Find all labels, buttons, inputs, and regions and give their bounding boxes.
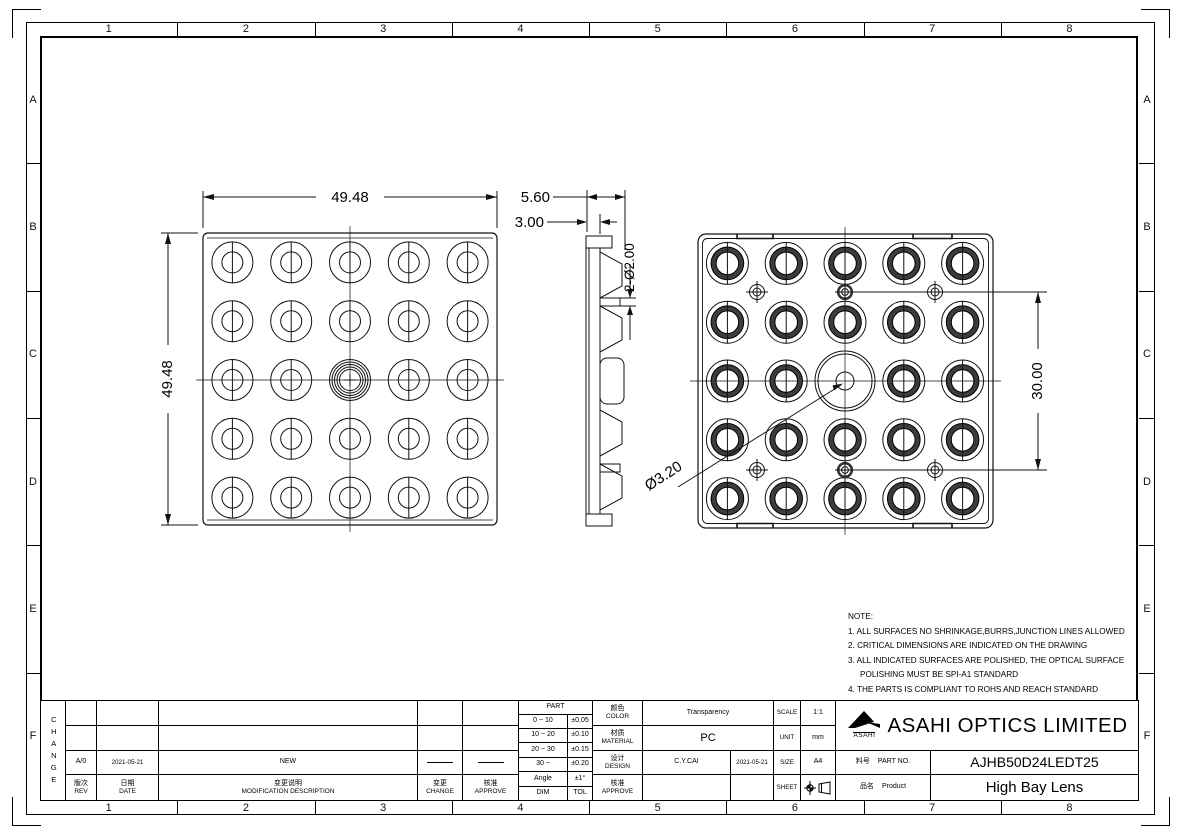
zone-col-divider — [726, 22, 727, 36]
approve-header: 核准 APPROVE — [462, 774, 519, 801]
design-label-en: DESIGN — [605, 763, 630, 770]
zone-row-label-left: B — [26, 163, 40, 290]
approve-header-en: APPROVE — [475, 788, 506, 795]
tolerance-footer-tol: TOL — [567, 786, 593, 801]
zone-col-divider — [452, 22, 453, 36]
product-value: High Bay Lens — [930, 774, 1139, 801]
zone-col-divider — [452, 800, 453, 815]
approve-label: 核准 APPROVE — [592, 774, 643, 801]
zone-col-label-top: 5 — [589, 22, 726, 36]
change-column-label: CHANGE — [49, 715, 58, 787]
design-by: C.Y.CAI — [642, 750, 731, 775]
zone-row-divider — [1139, 673, 1155, 674]
zone-row-divider — [1139, 545, 1155, 546]
projection-symbol-icon — [804, 781, 832, 795]
rev-empty-cell — [417, 725, 463, 751]
part-no-label-en: PART NO. — [878, 758, 910, 766]
zone-col-divider — [864, 800, 865, 815]
zone-col-divider — [1001, 800, 1002, 815]
approve-label-zh: 核准 — [611, 780, 625, 788]
zone-col-divider — [177, 800, 178, 815]
note-line: 1. ALL SURFACES NO SHRINKAGE,BURRS,JUNCT… — [848, 625, 1140, 640]
tolerance-tol: ±0.20 — [567, 757, 593, 772]
zone-col-divider — [589, 22, 590, 36]
tolerance-dim: Angle — [518, 771, 568, 787]
material-label-zh: 材质 — [611, 730, 625, 738]
product-label-en: Product — [882, 783, 906, 791]
change-header-zh: 变更 — [433, 780, 447, 788]
zone-col-label-bottom: 7 — [864, 800, 1001, 815]
tolerance-tol: ±1° — [567, 771, 593, 787]
zone-row-label-right: F — [1139, 673, 1155, 800]
desc-header-en: MODIFICATION DESCRIPTION — [241, 788, 334, 795]
scale-label: SCALE — [773, 700, 801, 726]
zone-col-divider — [177, 22, 178, 36]
part-no-value: AJHB50D24LEDT25 — [930, 750, 1139, 775]
zone-row-label-right: E — [1139, 545, 1155, 672]
zone-row-divider — [1139, 291, 1155, 292]
zone-row-label-left: D — [26, 418, 40, 545]
zone-col-label-bottom: 1 — [40, 800, 177, 815]
zone-col-divider — [315, 800, 316, 815]
zone-col-label-top: 7 — [864, 22, 1001, 36]
notes-title: NOTE: — [848, 610, 1140, 625]
color-label-zh: 颜色 — [611, 705, 625, 713]
color-label-en: COLOR — [606, 713, 629, 720]
zone-col-label-bottom: 8 — [1001, 800, 1138, 815]
tolerance-header: PART — [518, 700, 593, 715]
brand-cell: ASAHI ASAHI OPTICS LIMITED — [835, 700, 1139, 751]
company-name: ASAHI OPTICS LIMITED — [887, 714, 1127, 738]
desc-header-zh: 变更说明 — [274, 780, 302, 788]
color-label: 颜色 COLOR — [592, 700, 643, 726]
zone-col-label-top: 6 — [726, 22, 863, 36]
zone-col-divider — [1001, 22, 1002, 36]
tolerance-tol: ±0.15 — [567, 742, 593, 758]
zone-col-divider — [589, 800, 590, 815]
zone-col-label-top: 2 — [177, 22, 314, 36]
zone-col-label-bottom: 5 — [589, 800, 726, 815]
asahi-logo: ASAHI — [846, 711, 882, 740]
zone-row-label-left: A — [26, 36, 40, 163]
note-line: POLISHING MUST BE SPI-A1 STANDARD — [848, 668, 1140, 683]
approve-header-zh: 核准 — [484, 780, 498, 788]
zone-col-label-top: 3 — [315, 22, 452, 36]
notes-block: NOTE: 1. ALL SURFACES NO SHRINKAGE,BURRS… — [848, 610, 1140, 697]
drawing-sheet: 49.48 49.48 — [0, 0, 1181, 835]
zone-row-label-right: C — [1139, 291, 1155, 418]
size-value: A4 — [800, 750, 836, 775]
date-header-zh: 日期 — [121, 780, 135, 788]
zone-row-divider — [26, 291, 40, 292]
note-line: 3. ALL INDICATED SURFACES ARE POLISHED, … — [848, 654, 1140, 669]
sheet-label: SHEET — [773, 774, 801, 801]
zone-row-label-right: B — [1139, 163, 1155, 290]
zone-row-label-left: E — [26, 545, 40, 672]
design-label: 设计 DESIGN — [592, 750, 643, 775]
rev-header-en: REV — [74, 788, 87, 795]
zone-col-label-bottom: 3 — [315, 800, 452, 815]
zone-row-label-right: A — [1139, 36, 1155, 163]
unit-label: UNIT — [773, 725, 801, 751]
zone-col-divider — [726, 800, 727, 815]
zone-col-label-bottom: 4 — [452, 800, 589, 815]
note-line: 2. CRITICAL DIMENSIONS ARE INDICATED ON … — [848, 639, 1140, 654]
zone-col-divider — [864, 22, 865, 36]
rev-empty-cell — [96, 700, 159, 726]
zone-row-label-left: F — [26, 673, 40, 800]
note-line: 4. THE PARTS IS COMPLIANT TO ROHS AND RE… — [848, 683, 1140, 698]
zone-col-label-top: 1 — [40, 22, 177, 36]
unit-value: mm — [800, 725, 836, 751]
revision-rev: A/0 — [65, 750, 97, 775]
revision-change-sign — [417, 750, 463, 775]
date-header-en: DATE — [119, 788, 136, 795]
zone-col-label-top: 4 — [452, 22, 589, 36]
zone-row-label-right: D — [1139, 418, 1155, 545]
material-label: 材质 MATERIAL — [592, 725, 643, 751]
tolerance-dim: 0 ~ 10 — [518, 714, 568, 729]
design-label-zh: 设计 — [611, 755, 625, 763]
tolerance-dim: 10 ~ 20 — [518, 728, 568, 743]
product-label-zh: 品名 — [860, 783, 874, 791]
zone-row-divider — [1139, 163, 1155, 164]
revision-description: NEW — [158, 750, 418, 775]
zone-row-divider — [26, 418, 40, 419]
rev-empty-cell — [96, 725, 159, 751]
date-header: 日期 DATE — [96, 774, 159, 801]
rev-empty-cell — [158, 725, 418, 751]
zone-row-divider — [26, 163, 40, 164]
rev-empty-cell — [462, 700, 519, 726]
change-header-en: CHANGE — [426, 788, 454, 795]
rev-header-zh: 版次 — [74, 780, 88, 788]
tolerance-tol: ±0.05 — [567, 714, 593, 729]
rev-empty-cell — [417, 700, 463, 726]
rev-empty-cell — [65, 700, 97, 726]
desc-header: 变更说明 MODIFICATION DESCRIPTION — [158, 774, 418, 801]
size-label: SIZE — [773, 750, 801, 775]
rev-empty-cell — [462, 725, 519, 751]
zone-row-divider — [26, 673, 40, 674]
tolerance-dim: 30 ~ — [518, 757, 568, 772]
corner-mark-top-right — [1141, 9, 1170, 38]
material-label-en: MATERIAL — [601, 738, 633, 745]
zone-col-label-bottom: 2 — [177, 800, 314, 815]
part-no-label: 料号 PART NO. — [835, 750, 931, 775]
scale-value: 1:1 — [800, 700, 836, 726]
zone-row-divider — [1139, 418, 1155, 419]
asahi-logo-text: ASAHI — [853, 732, 875, 740]
approve-label-en: APPROVE — [602, 788, 633, 795]
product-label: 品名 Product — [835, 774, 931, 801]
zone-col-label-bottom: 6 — [726, 800, 863, 815]
design-date: 2021-05-21 — [730, 750, 774, 775]
change-column: CHANGE — [40, 700, 66, 801]
material-value: PC — [642, 725, 774, 751]
sheet-value — [800, 774, 836, 801]
revision-date: 2021-05-21 — [96, 750, 159, 775]
approve-by — [642, 774, 731, 801]
zone-col-label-top: 8 — [1001, 22, 1138, 36]
rev-empty-cell — [158, 700, 418, 726]
rev-empty-cell — [65, 725, 97, 751]
tolerance-dim: 20 ~ 30 — [518, 742, 568, 758]
change-header: 变更 CHANGE — [417, 774, 463, 801]
zone-col-divider — [315, 22, 316, 36]
part-no-label-zh: 料号 — [856, 758, 870, 766]
zone-row-divider — [26, 545, 40, 546]
tolerance-footer-dim: DIM — [518, 786, 568, 801]
approve-date — [730, 774, 774, 801]
revision-approve-sign — [462, 750, 519, 775]
tolerance-tol: ±0.10 — [567, 728, 593, 743]
color-value: Transparency — [642, 700, 774, 726]
rev-header: 版次 REV — [65, 774, 97, 801]
zone-row-label-left: C — [26, 291, 40, 418]
corner-mark-bottom-right — [1141, 797, 1170, 826]
